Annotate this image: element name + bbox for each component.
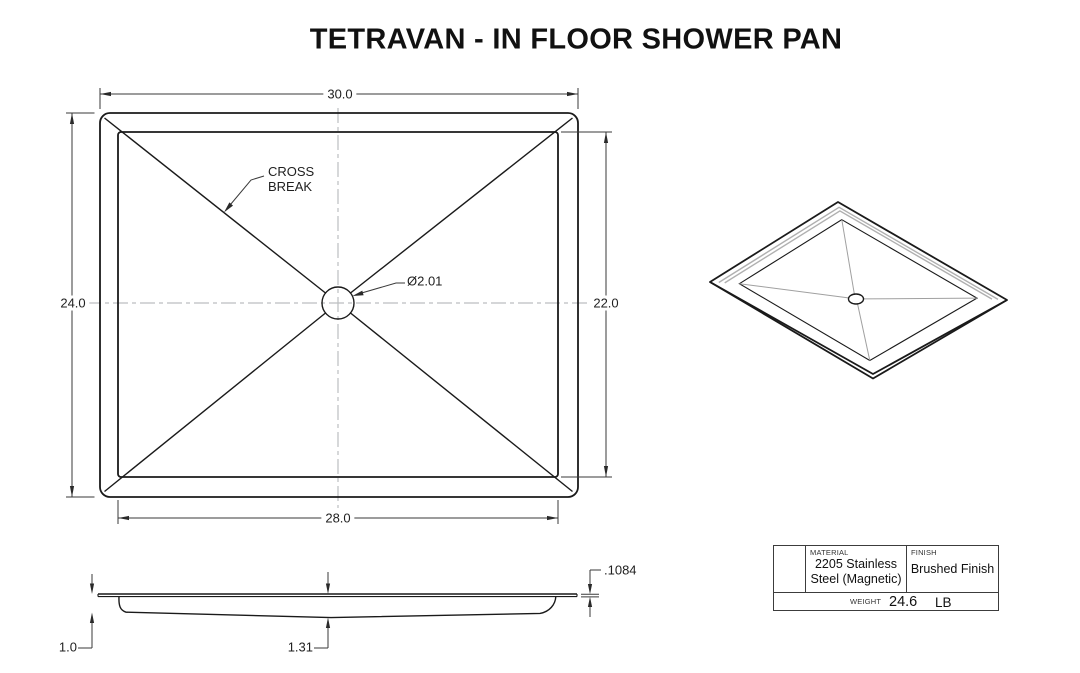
iso-bottom-silhouette [710,282,1007,379]
dim-label-outer-height: 24.0 [56,296,89,311]
cross-break-label-line2: BREAK [268,179,314,194]
weight-label: WEIGHT [850,597,881,606]
finish-value: Brushed Finish [907,562,998,576]
cross-break-label-line1: CROSS [268,164,314,179]
material-value-line1: 2205 Stainless [806,557,906,572]
weight-value: 24.6 [889,594,917,610]
material-value-line2: Steel (Magnetic) [806,572,906,587]
title-block-weight-row: WEIGHT 24.6 LB [774,592,998,611]
dim-label-drain-diameter: Ø2.01 [407,274,442,289]
dim-label-center-depth: 1.31 [288,640,313,655]
drawing-sheet: TETRAVAN - IN FLOOR SHOWER PAN [0,0,1080,673]
weight-unit: LB [935,595,952,610]
dimension-flange-thickness [581,570,601,617]
finish-label: FINISH [911,548,937,557]
material-value: 2205 Stainless Steel (Magnetic) [806,557,906,587]
side-view [98,594,577,618]
title-block-finish-cell: FINISH Brushed Finish [907,546,998,592]
iso-top-face-outline [710,202,1007,374]
cross-break-label: CROSS BREAK [268,164,314,194]
cross-break-leader [224,176,264,212]
title-block: MATERIAL 2205 Stainless Steel (Magnetic)… [773,545,999,611]
iso-rim-highlight-2 [725,211,992,299]
pan-profile-bottom [119,597,556,618]
title-block-empty-cell [774,546,806,592]
title-block-material-cell: MATERIAL 2205 Stainless Steel (Magnetic) [806,546,907,592]
dim-label-inner-height: 22.0 [589,296,622,311]
title-block-row-top: MATERIAL 2205 Stainless Steel (Magnetic)… [774,546,998,592]
dim-label-outer-width: 30.0 [323,87,356,102]
dim-label-inner-width: 28.0 [321,511,354,526]
material-label: MATERIAL [810,548,849,557]
dim-label-edge-depth: 1.0 [59,640,77,655]
iso-drain-hole [849,294,864,304]
top-view [86,108,592,508]
dim-label-flange-thickness: .1084 [604,563,637,578]
dimension-center-depth [314,572,330,648]
isometric-view [710,202,1007,379]
dimension-edge-depth [78,574,94,648]
